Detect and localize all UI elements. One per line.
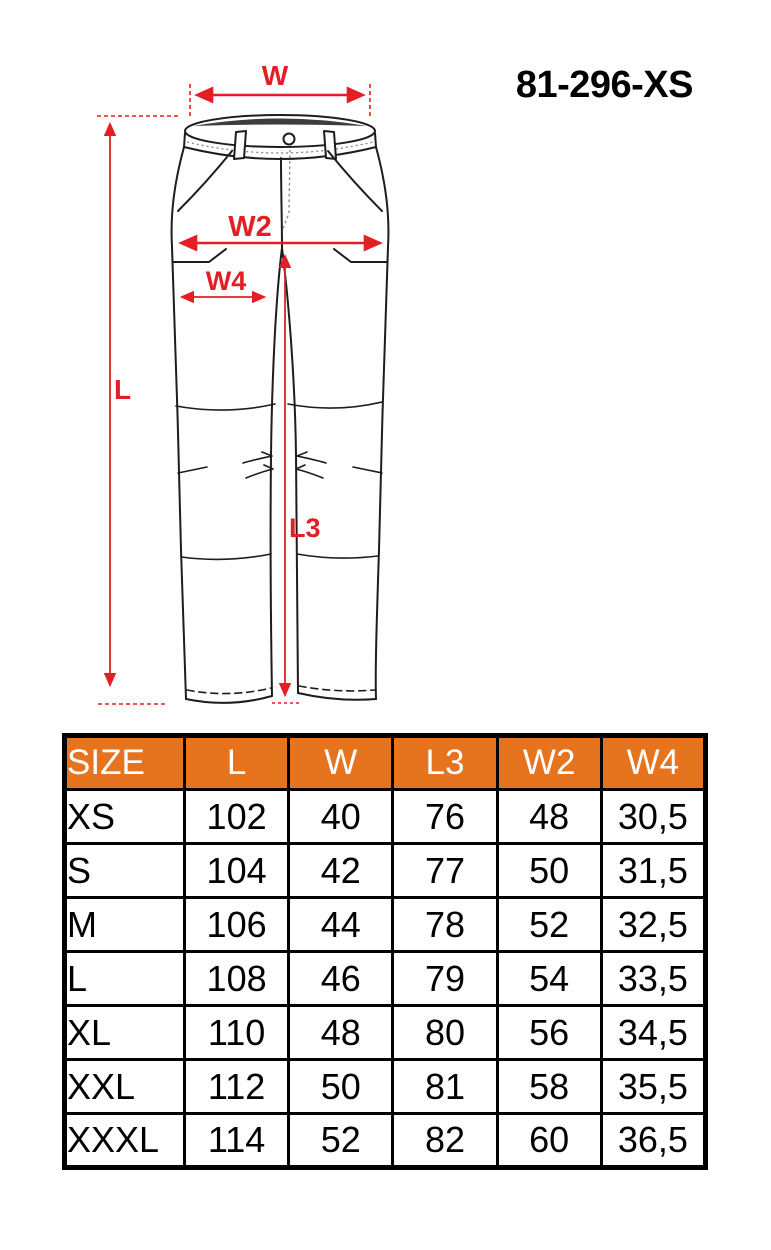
value-cell: 52	[289, 1114, 393, 1168]
dimension-l: L	[97, 116, 178, 704]
column-header-w: W	[289, 736, 393, 790]
size-cell: XL	[65, 1006, 185, 1060]
table-row: XXL 112 50 81 58 35,5	[65, 1060, 706, 1114]
size-table: SIZE L W L3 W2 W4 XS 102 40 76 48 30,5 S…	[62, 733, 708, 1170]
right-dart	[297, 452, 326, 463]
header-row: SIZE L W L3 W2 W4	[65, 736, 706, 790]
value-cell: 48	[497, 790, 601, 844]
value-cell: 81	[393, 1060, 497, 1114]
right-seam-tick	[353, 467, 382, 473]
value-cell: 42	[289, 844, 393, 898]
column-header-l: L	[185, 736, 289, 790]
value-cell: 78	[393, 898, 497, 952]
dimension-label-l: L	[114, 374, 131, 405]
value-cell: 50	[289, 1060, 393, 1114]
table-row: S 104 42 77 50 31,5	[65, 844, 706, 898]
right-cargo-flap	[334, 249, 387, 262]
value-cell: 40	[289, 790, 393, 844]
size-cell: L	[65, 952, 185, 1006]
table-row: M 106 44 78 52 32,5	[65, 898, 706, 952]
value-cell: 52	[497, 898, 601, 952]
value-cell: 35,5	[601, 1060, 705, 1114]
table-row: XXXL 114 52 82 60 36,5	[65, 1114, 706, 1168]
size-chart-page: 81-296-XS	[0, 0, 771, 1250]
left-seam-tick	[178, 467, 207, 473]
value-cell: 79	[393, 952, 497, 1006]
value-cell: 112	[185, 1060, 289, 1114]
dimension-label-l3: L3	[289, 513, 321, 543]
value-cell: 54	[497, 952, 601, 1006]
value-cell: 104	[185, 844, 289, 898]
right-hem-stitch	[299, 686, 375, 691]
size-cell: XXXL	[65, 1114, 185, 1168]
dimension-label-w2: W2	[228, 211, 272, 243]
fly-stitch	[282, 150, 290, 231]
column-header-w2: W2	[497, 736, 601, 790]
value-cell: 56	[497, 1006, 601, 1060]
value-cell: 108	[185, 952, 289, 1006]
left-dart	[246, 465, 273, 478]
column-header-l3: L3	[393, 736, 497, 790]
value-cell: 77	[393, 844, 497, 898]
trousers-technical-drawing: W L W2 W4 L3	[0, 0, 771, 733]
size-cell: S	[65, 844, 185, 898]
value-cell: 31,5	[601, 844, 705, 898]
table-row: XS 102 40 76 48 30,5	[65, 790, 706, 844]
belt-loop	[234, 131, 246, 159]
value-cell: 76	[393, 790, 497, 844]
table-row: L 108 46 79 54 33,5	[65, 952, 706, 1006]
value-cell: 110	[185, 1006, 289, 1060]
right-dart	[296, 465, 323, 478]
waistband	[184, 115, 376, 159]
value-cell: 106	[185, 898, 289, 952]
dimension-w2: W2	[181, 211, 380, 243]
left-dart	[243, 452, 272, 463]
left-hem	[186, 696, 272, 703]
value-cell: 80	[393, 1006, 497, 1060]
dimension-w: W	[190, 60, 370, 116]
dimension-label-w4: W4	[206, 266, 247, 296]
value-cell: 50	[497, 844, 601, 898]
value-cell: 114	[185, 1114, 289, 1168]
dimension-w4: W4	[182, 266, 264, 297]
right-slant-pocket	[328, 151, 382, 211]
right-knee-seam	[288, 402, 382, 408]
left-cargo-flap	[173, 249, 226, 262]
table-row: XL 110 48 80 56 34,5	[65, 1006, 706, 1060]
value-cell: 58	[497, 1060, 601, 1114]
left-slant-pocket	[178, 151, 232, 211]
size-cell: M	[65, 898, 185, 952]
left-cuff-seam	[181, 554, 271, 559]
right-cuff-seam	[297, 554, 378, 558]
value-cell: 36,5	[601, 1114, 705, 1168]
value-cell: 102	[185, 790, 289, 844]
value-cell: 30,5	[601, 790, 705, 844]
waist-button	[284, 134, 295, 145]
value-cell: 32,5	[601, 898, 705, 952]
value-cell: 33,5	[601, 952, 705, 1006]
column-header-w4: W4	[601, 736, 705, 790]
value-cell: 48	[289, 1006, 393, 1060]
left-knee-seam	[176, 404, 275, 410]
center-front-seam	[281, 158, 282, 248]
value-cell: 60	[497, 1114, 601, 1168]
size-cell: XXL	[65, 1060, 185, 1114]
right-hem	[298, 693, 376, 700]
value-cell: 44	[289, 898, 393, 952]
dimension-label-w: W	[262, 60, 289, 91]
value-cell: 46	[289, 952, 393, 1006]
fly-and-pockets	[173, 150, 387, 262]
left-hem-stitch	[187, 688, 271, 694]
value-cell: 34,5	[601, 1006, 705, 1060]
trousers-outline	[172, 133, 389, 703]
waistband-bottom	[184, 147, 376, 159]
size-cell: XS	[65, 790, 185, 844]
value-cell: 82	[393, 1114, 497, 1168]
column-header-size: SIZE	[65, 736, 185, 790]
